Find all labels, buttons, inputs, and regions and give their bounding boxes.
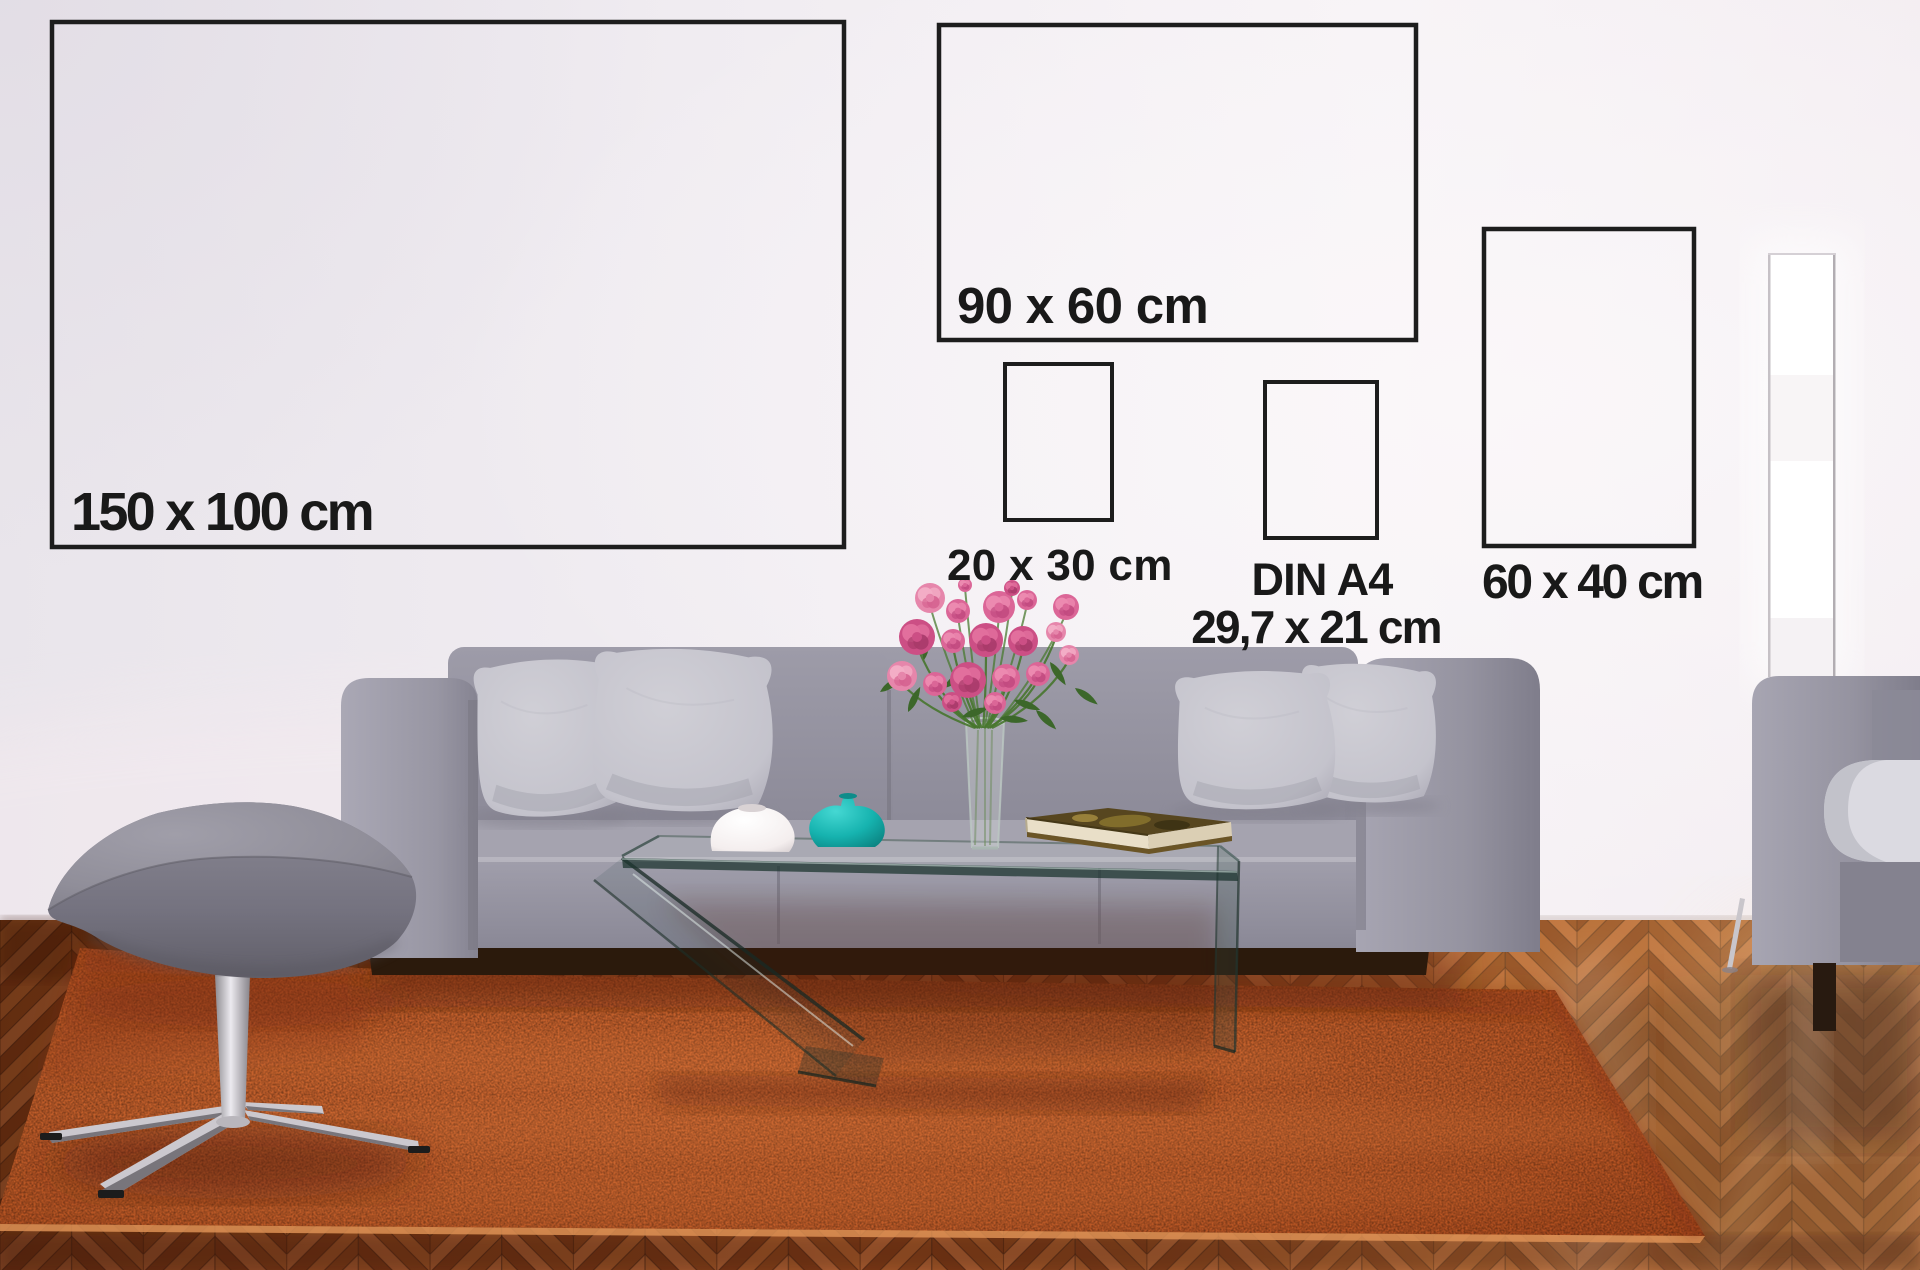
svg-text:60 x 40 cm: 60 x 40 cm [1482,556,1702,609]
svg-text:29,7 x 21 cm: 29,7 x 21 cm [1191,601,1441,653]
svg-text:150 x 100 cm: 150 x 100 cm [71,482,372,542]
svg-text:20 x 30 cm: 20 x 30 cm [947,541,1173,590]
svg-text:90 x 60 cm: 90 x 60 cm [957,277,1208,334]
svg-text:DIN A4: DIN A4 [1251,554,1393,605]
